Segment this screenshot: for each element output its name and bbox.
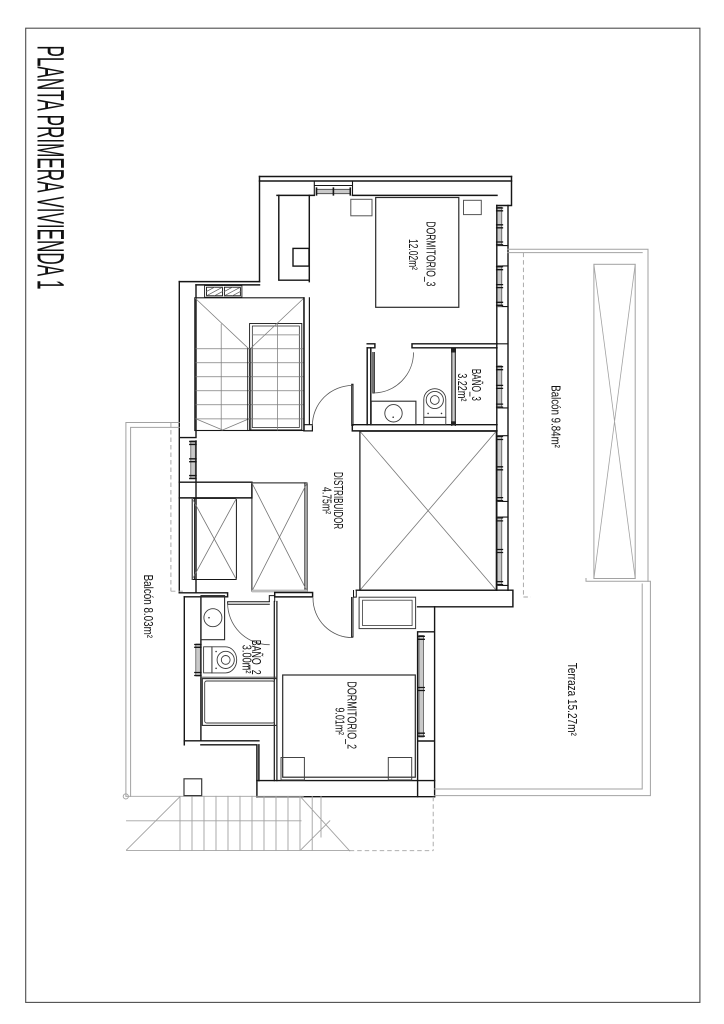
svg-text:Balcón 8.03m²: Balcón 8.03m² [141,575,155,639]
svg-text:4.75m²: 4.75m² [320,487,334,514]
svg-text:Balcón 9.84m²: Balcón 9.84m² [549,385,563,448]
svg-text:PLANTA PRIMERA VIVIENDA 1: PLANTA PRIMERA VIVIENDA 1 [29,46,71,290]
svg-text:BAÑO_3: BAÑO_3 [469,369,483,401]
svg-text:DORMITORIO_3: DORMITORIO_3 [423,221,437,286]
svg-text:3.22m²: 3.22m² [455,373,469,401]
svg-text:3.00m²: 3.00m² [239,645,253,674]
svg-text:9.01m²: 9.01m² [332,708,346,736]
svg-text:Terraza 15.27m²: Terraza 15.27m² [565,663,579,736]
svg-text:12.02m²: 12.02m² [406,239,420,270]
